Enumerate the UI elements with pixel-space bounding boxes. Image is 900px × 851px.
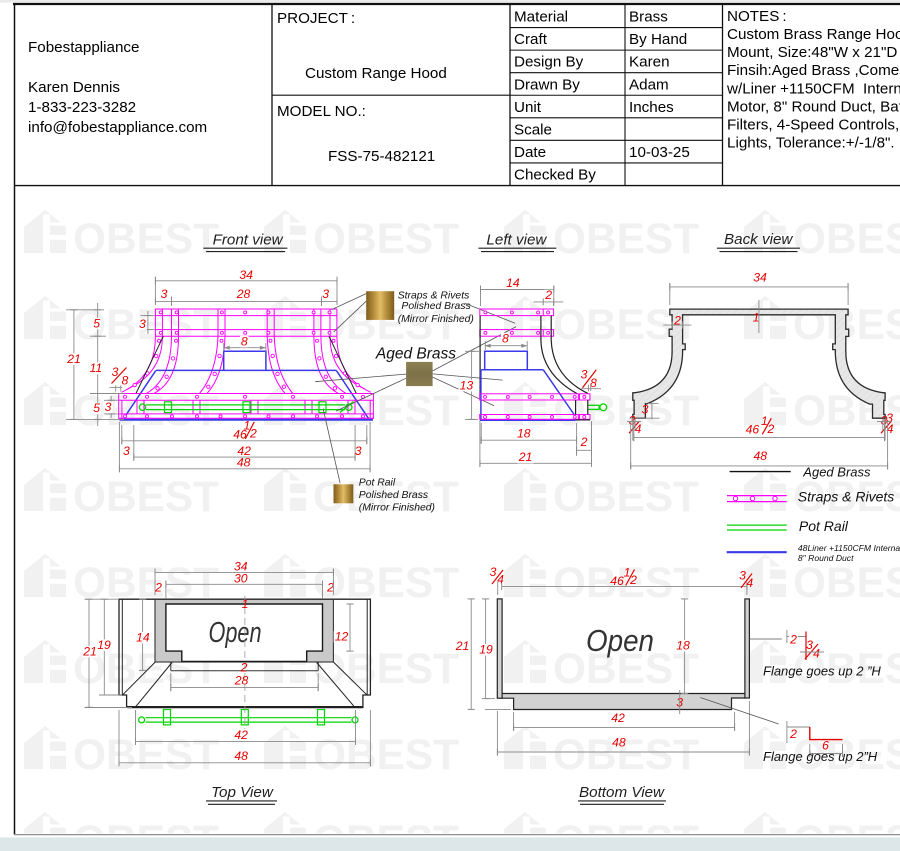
svg-text:Karen: Karen bbox=[629, 54, 670, 71]
svg-text:Flange goes up 2”H: Flange goes up 2”H bbox=[763, 749, 878, 764]
svg-text:Back view: Back view bbox=[724, 231, 793, 248]
svg-text:MODEL NO.:: MODEL NO.: bbox=[277, 103, 366, 120]
svg-text:Aged Brass: Aged Brass bbox=[375, 345, 456, 362]
svg-text:Filters, 4-Speed Controls, LED: Filters, 4-Speed Controls, LED bbox=[727, 117, 900, 134]
svg-text:21: 21 bbox=[66, 352, 81, 366]
svg-text:FSS-75-482121: FSS-75-482121 bbox=[328, 148, 435, 165]
svg-text:48: 48 bbox=[237, 455, 251, 469]
svg-text:3: 3 bbox=[806, 638, 813, 652]
svg-text:21: 21 bbox=[455, 639, 470, 653]
svg-text:10-03-25: 10-03-25 bbox=[629, 144, 690, 161]
svg-text:46: 46 bbox=[746, 422, 760, 436]
svg-text:3: 3 bbox=[581, 367, 588, 381]
svg-text:1: 1 bbox=[753, 311, 760, 325]
svg-text:2: 2 bbox=[789, 633, 797, 647]
svg-text:Date: Date bbox=[514, 144, 546, 161]
svg-text:Flange goes up 2 ”H: Flange goes up 2 ”H bbox=[763, 664, 881, 679]
svg-text:3: 3 bbox=[490, 565, 497, 579]
svg-text:3: 3 bbox=[642, 403, 649, 417]
svg-text:48: 48 bbox=[754, 449, 768, 463]
svg-text:3: 3 bbox=[105, 400, 112, 414]
svg-text:18: 18 bbox=[676, 639, 690, 653]
svg-text:(Mirror Finished): (Mirror Finished) bbox=[359, 502, 435, 513]
svg-text:19: 19 bbox=[479, 643, 493, 657]
svg-text:Front view: Front view bbox=[213, 232, 284, 249]
svg-text:3: 3 bbox=[139, 317, 146, 331]
svg-text:Aged Brass: Aged Brass bbox=[802, 465, 871, 480]
svg-text:Unit: Unit bbox=[514, 99, 542, 116]
svg-text:3: 3 bbox=[161, 287, 168, 301]
svg-text:2: 2 bbox=[544, 288, 552, 302]
svg-text:NOTES :: NOTES : bbox=[727, 8, 787, 25]
svg-text:Finsih:Aged Brass ,Comes: Finsih:Aged Brass ,Comes bbox=[727, 62, 900, 79]
svg-text:Design By: Design By bbox=[514, 54, 584, 71]
svg-text:3: 3 bbox=[739, 569, 746, 583]
svg-text:46: 46 bbox=[610, 574, 624, 588]
svg-text:2: 2 bbox=[673, 314, 681, 328]
svg-text:13: 13 bbox=[460, 378, 474, 392]
svg-text:30: 30 bbox=[234, 571, 248, 585]
svg-text:Top View: Top View bbox=[211, 784, 274, 801]
svg-text:Custom Brass Range Hood Wall: Custom Brass Range Hood Wall bbox=[727, 26, 900, 43]
svg-text:info@fobestappliance.com: info@fobestappliance.com bbox=[28, 119, 207, 136]
svg-text:Drawn By: Drawn By bbox=[514, 76, 580, 93]
svg-text:Custom Range Hood: Custom Range Hood bbox=[305, 65, 447, 82]
svg-text:Fobestappliance: Fobestappliance bbox=[28, 39, 139, 56]
svg-text:Karen Dennis: Karen Dennis bbox=[28, 79, 120, 96]
svg-text:28: 28 bbox=[236, 287, 251, 301]
svg-text:Material: Material bbox=[514, 9, 568, 26]
svg-text:Polished Brass: Polished Brass bbox=[359, 490, 428, 501]
svg-text:21: 21 bbox=[82, 645, 97, 659]
svg-text:PROJECT :: PROJECT : bbox=[277, 10, 355, 27]
svg-text:1: 1 bbox=[242, 597, 249, 611]
svg-text:48: 48 bbox=[234, 749, 248, 763]
svg-text:Left view: Left view bbox=[486, 231, 547, 248]
svg-text:18: 18 bbox=[517, 427, 531, 441]
svg-text:2: 2 bbox=[240, 660, 248, 674]
svg-text:Lights, Tolerance:+/-1/8".: Lights, Tolerance:+/-1/8". bbox=[727, 135, 895, 152]
svg-text:Pot Rail: Pot Rail bbox=[359, 478, 396, 489]
svg-text:48: 48 bbox=[612, 735, 626, 749]
svg-text:3: 3 bbox=[123, 444, 130, 458]
svg-text:14: 14 bbox=[506, 276, 520, 290]
svg-text:2: 2 bbox=[789, 727, 797, 741]
svg-text:14: 14 bbox=[136, 631, 150, 645]
svg-text:Open: Open bbox=[209, 617, 262, 649]
svg-text:Adam: Adam bbox=[629, 76, 669, 93]
svg-text:Scale: Scale bbox=[514, 121, 552, 138]
svg-text:5: 5 bbox=[93, 401, 100, 415]
svg-text:By Hand: By Hand bbox=[629, 31, 687, 48]
svg-text:Open: Open bbox=[586, 623, 654, 658]
svg-text:5: 5 bbox=[93, 316, 100, 330]
svg-text:12: 12 bbox=[335, 630, 349, 644]
svg-text:1-833-223-3282: 1-833-223-3282 bbox=[28, 99, 136, 116]
svg-text:Craft: Craft bbox=[514, 31, 548, 48]
svg-text:48Liner +1150CFM Internal Blow: 48Liner +1150CFM Internal Blower bbox=[798, 543, 900, 553]
svg-text:3: 3 bbox=[355, 444, 362, 458]
svg-text:42: 42 bbox=[611, 711, 625, 725]
svg-text:(Mirror Finished): (Mirror Finished) bbox=[398, 314, 474, 325]
svg-text:Motor, 8" Round Duct, Baffle: Motor, 8" Round Duct, Baffle bbox=[727, 98, 900, 115]
svg-text:4: 4 bbox=[746, 576, 753, 590]
svg-text:3: 3 bbox=[322, 287, 329, 301]
svg-text:w/Liner +1150CFM Internal: w/Liner +1150CFM Internal bbox=[726, 80, 900, 97]
svg-text:34: 34 bbox=[753, 270, 767, 284]
svg-text:19: 19 bbox=[97, 638, 111, 652]
svg-text:4: 4 bbox=[497, 573, 504, 587]
svg-text:Bottom View: Bottom View bbox=[579, 784, 665, 801]
svg-text:2: 2 bbox=[629, 573, 637, 587]
svg-text:8: 8 bbox=[122, 373, 129, 387]
svg-text:Straps & Rivets: Straps & Rivets bbox=[798, 489, 894, 505]
svg-text:21: 21 bbox=[518, 450, 533, 464]
svg-text:Pot Rail: Pot Rail bbox=[799, 518, 849, 534]
svg-text:8: 8 bbox=[502, 331, 509, 345]
svg-text:11: 11 bbox=[89, 361, 102, 375]
svg-text:28: 28 bbox=[234, 673, 249, 687]
svg-text:Inches: Inches bbox=[629, 99, 674, 116]
svg-text:Checked By: Checked By bbox=[514, 167, 596, 184]
svg-text:8: 8 bbox=[241, 334, 248, 348]
svg-text:2: 2 bbox=[580, 435, 588, 449]
svg-text:42: 42 bbox=[234, 728, 248, 742]
svg-text:Polished Brass: Polished Brass bbox=[401, 301, 470, 312]
svg-text:Brass: Brass bbox=[629, 9, 668, 26]
svg-text:8" Round Duct: 8" Round Duct bbox=[798, 553, 854, 563]
svg-text:34: 34 bbox=[239, 268, 253, 282]
svg-text:Mount, Size:48"W x 21"D x 21"H: Mount, Size:48"W x 21"D x 21"H, bbox=[727, 44, 900, 61]
svg-text:4: 4 bbox=[635, 422, 642, 436]
